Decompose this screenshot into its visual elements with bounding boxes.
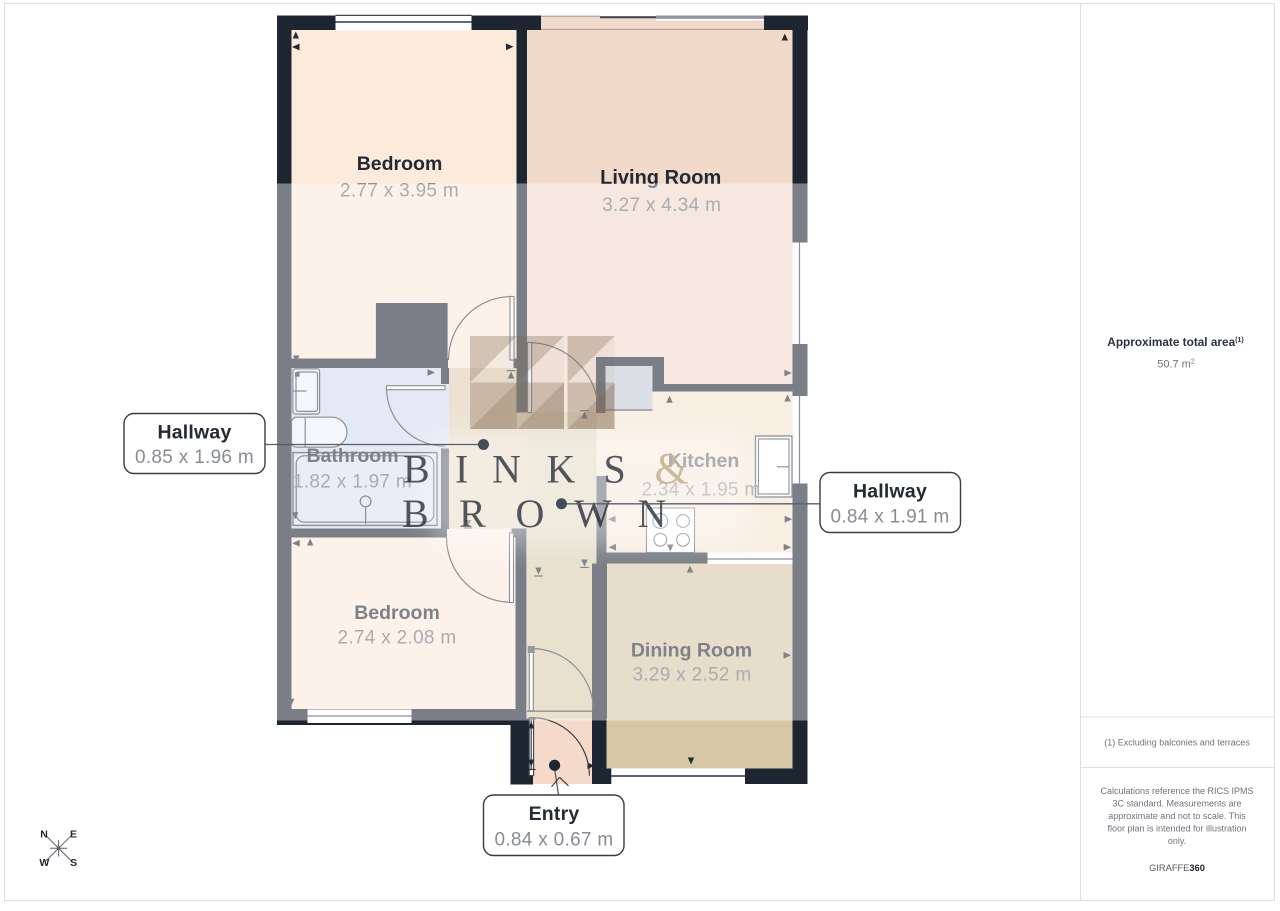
svg-text:I: I: [455, 447, 468, 492]
svg-text:N: N: [638, 491, 667, 536]
svg-text:Hallway: Hallway: [157, 422, 231, 444]
svg-text:E: E: [70, 829, 77, 841]
svg-text:S: S: [604, 447, 626, 492]
svg-text:3C standard. Measurements are: 3C standard. Measurements are: [1112, 799, 1241, 809]
svg-text:floor plan is intended for ill: floor plan is intended for illustration: [1107, 824, 1246, 834]
svg-text:GIRAFFE360: GIRAFFE360: [1149, 863, 1205, 873]
svg-text:Bedroom: Bedroom: [357, 153, 443, 175]
svg-text:&: &: [655, 444, 689, 493]
svg-text:N: N: [40, 829, 48, 841]
svg-text:Approximate total area(1): Approximate total area(1): [1107, 335, 1243, 349]
svg-text:K: K: [547, 447, 576, 492]
svg-text:Hallway: Hallway: [853, 481, 927, 503]
svg-text:50.7 m2: 50.7 m2: [1157, 359, 1195, 371]
svg-text:B: B: [403, 447, 430, 492]
svg-text:O: O: [516, 491, 545, 536]
svg-text:B: B: [402, 491, 429, 536]
svg-text:W: W: [39, 857, 49, 869]
svg-text:Entry: Entry: [529, 803, 580, 825]
svg-text:0.85 x 1.96 m: 0.85 x 1.96 m: [135, 447, 254, 468]
svg-text:N: N: [492, 447, 521, 492]
svg-text:0.84 x 0.67 m: 0.84 x 0.67 m: [494, 830, 613, 851]
svg-text:R: R: [459, 491, 486, 536]
svg-text:W: W: [574, 491, 612, 536]
svg-text:(1) Excluding balconies and te: (1) Excluding balconies and terraces: [1104, 738, 1250, 748]
svg-text:0.84 x 1.91 m: 0.84 x 1.91 m: [830, 507, 949, 528]
svg-text:approximate and not to scale.: approximate and not to scale. This: [1108, 811, 1246, 821]
svg-text:S: S: [70, 857, 77, 869]
svg-text:only.: only.: [1168, 836, 1186, 846]
svg-text:Calculations reference the RIC: Calculations reference the RICS IPMS: [1100, 786, 1253, 796]
